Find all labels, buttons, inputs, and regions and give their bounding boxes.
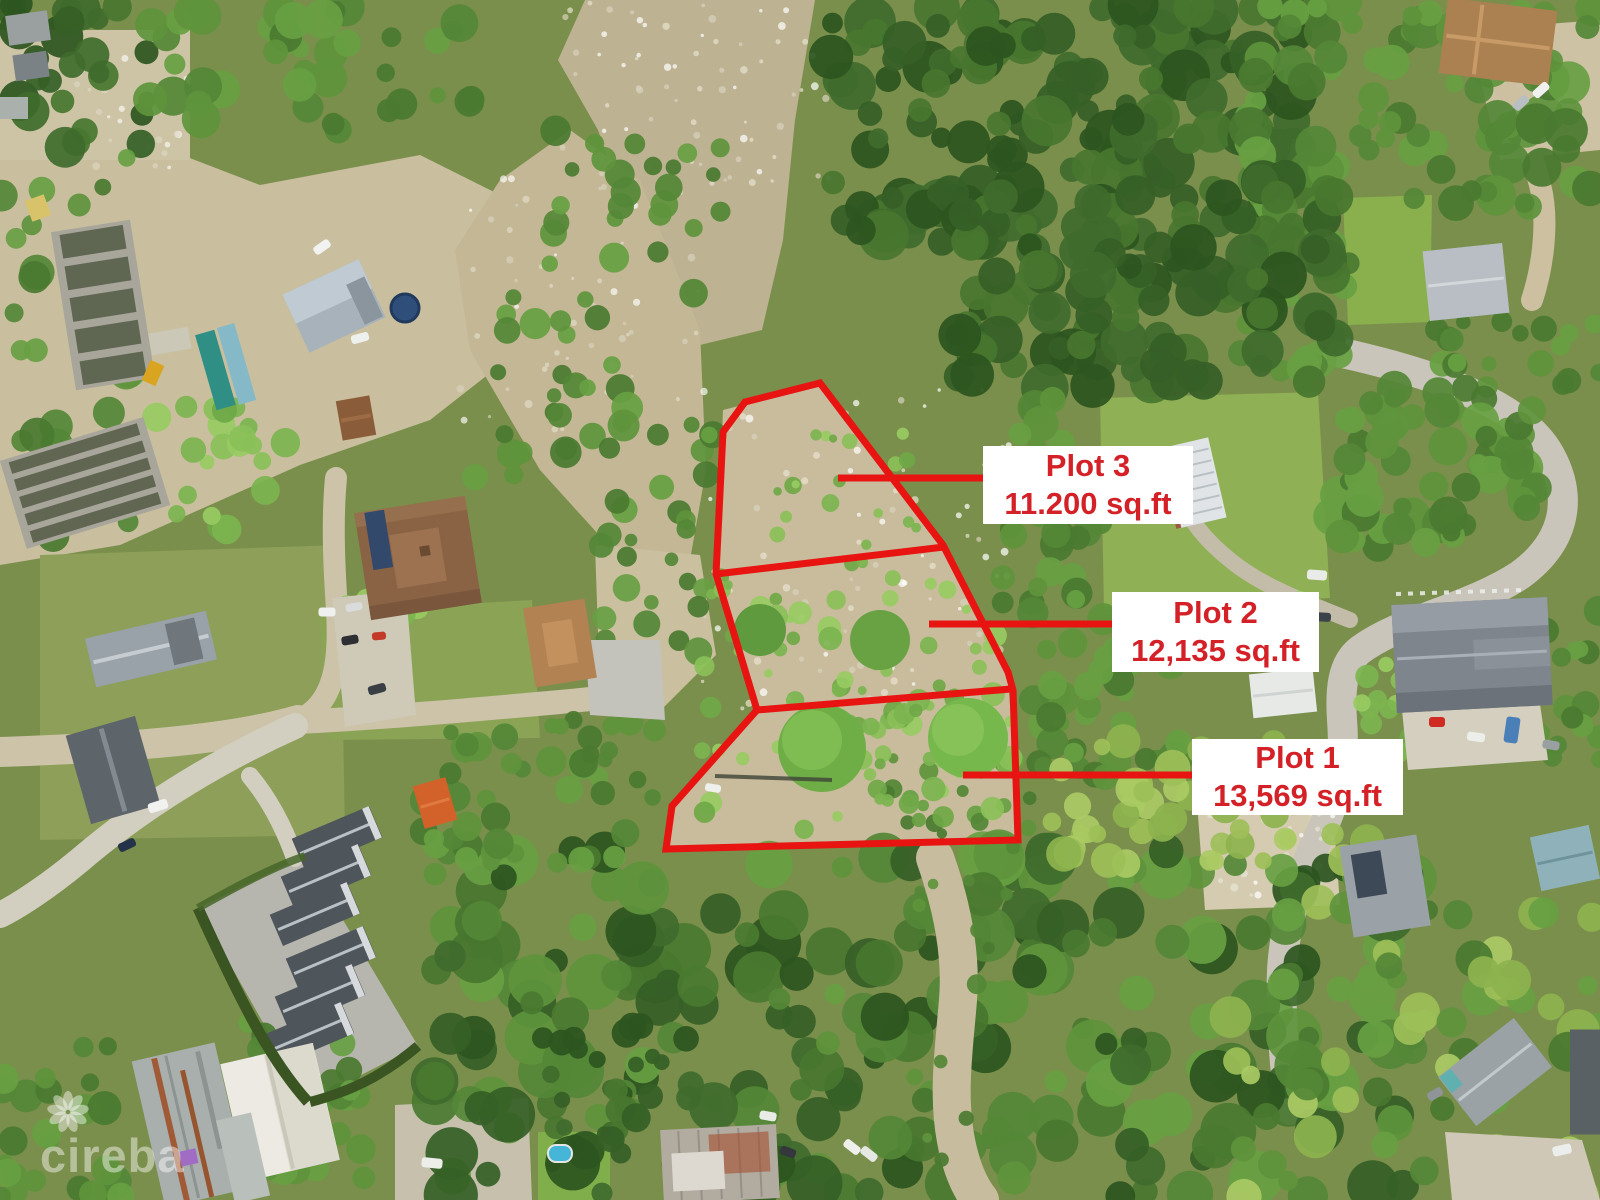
plot-1-area: 13,569 sq.ft [1213, 777, 1382, 815]
plot-2-area: 12,135 sq.ft [1131, 632, 1300, 670]
plot-3-label: Plot 3 11.200 sq.ft [983, 446, 1193, 524]
aerial-scene [0, 0, 1600, 1200]
plot-1-label: Plot 1 13,569 sq.ft [1192, 739, 1403, 815]
plot-3-name: Plot 3 [1046, 447, 1130, 485]
plot-1-name: Plot 1 [1255, 739, 1339, 777]
plot-2-name: Plot 2 [1173, 594, 1257, 632]
plot-2-label: Plot 2 12,135 sq.ft [1112, 592, 1319, 672]
aerial-photo: Plot 3 11.200 sq.ft Plot 2 12,135 sq.ft … [0, 0, 1600, 1200]
plot-3-area: 11.200 sq.ft [1004, 485, 1171, 523]
pool [548, 1145, 572, 1162]
trampoline [391, 294, 419, 322]
watermark-text: cireba [40, 1128, 184, 1183]
watermark: cireba [18, 1086, 258, 1200]
